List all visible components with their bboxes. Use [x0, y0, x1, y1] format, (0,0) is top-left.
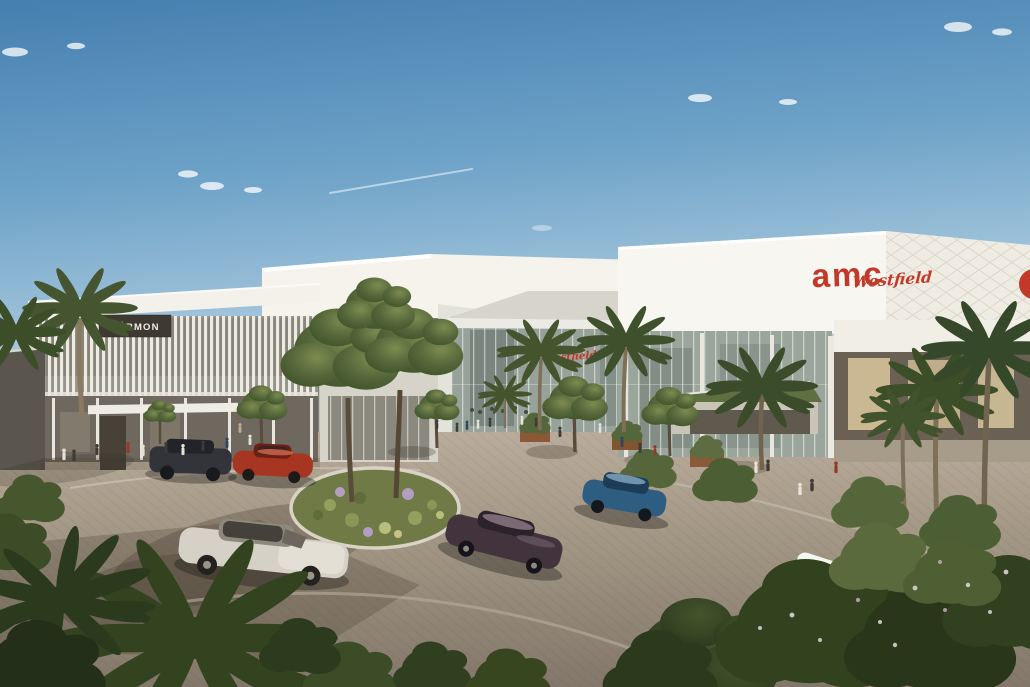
pedestrian [141, 444, 145, 456]
pier [828, 336, 834, 458]
pedestrian [558, 427, 561, 437]
pedestrian [620, 437, 623, 447]
pedestrian [638, 443, 641, 453]
pedestrian [126, 442, 129, 453]
pedestrian [598, 423, 601, 433]
pedestrian [535, 418, 538, 427]
pedestrian [489, 418, 492, 427]
mall-exterior-rendering: Dior Westfield amc Westfield [0, 0, 1030, 687]
pedestrian [653, 445, 656, 455]
pedestrian [446, 422, 449, 431]
pedestrian [181, 444, 184, 455]
pedestrian [164, 442, 167, 453]
pedestrian [521, 416, 524, 425]
storefront-base [834, 440, 1030, 462]
pedestrian [834, 461, 838, 473]
pedestrian [466, 421, 469, 430]
pedestrian [238, 423, 241, 433]
pedestrian [436, 420, 439, 429]
shop-glow [60, 412, 90, 452]
pedestrian [477, 420, 480, 429]
pedestrian [225, 438, 228, 448]
pedestrian [248, 435, 251, 445]
pedestrian [456, 423, 459, 432]
pedestrian [62, 448, 66, 460]
pedestrian [95, 444, 98, 455]
pedestrian [72, 449, 76, 461]
pedestrian [798, 483, 802, 495]
pedestrian [201, 441, 204, 451]
pedestrian [810, 479, 814, 491]
pedestrian [766, 459, 770, 471]
pedestrian [754, 461, 758, 473]
louver-screen [34, 316, 318, 396]
